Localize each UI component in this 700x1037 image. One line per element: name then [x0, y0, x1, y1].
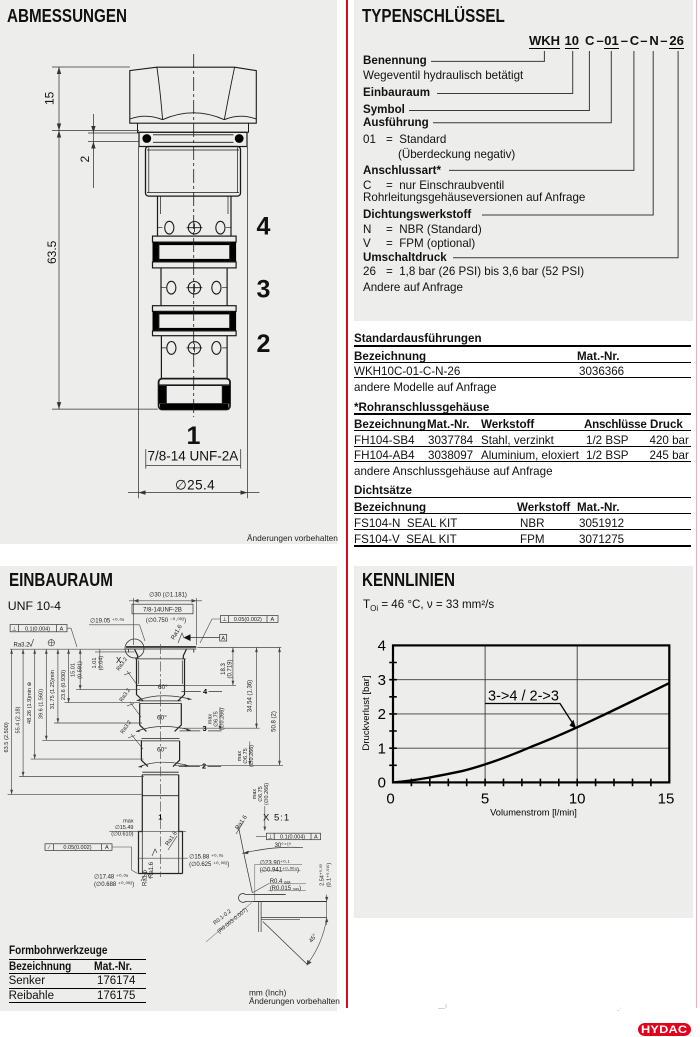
svg-text:Ra1.6: Ra1.6 — [149, 861, 155, 878]
svg-text:1: 1 — [187, 422, 201, 450]
svg-text:31.75 (1.25)min: 31.75 (1.25)min — [50, 670, 56, 709]
svg-text:A: A — [270, 617, 274, 623]
svg-text:(∅0.266): (∅0.266) — [263, 783, 270, 805]
svg-text:(∅0.266): (∅0.266) — [248, 745, 255, 767]
svg-text:3: 3 — [378, 672, 386, 689]
svg-text:50.8 (2): 50.8 (2) — [272, 711, 278, 732]
svg-text:63.5: 63.5 — [45, 240, 59, 264]
svg-text:15: 15 — [658, 791, 675, 808]
svg-text:Ra1.6: Ra1.6 — [165, 830, 179, 847]
svg-text:Ra1.6: Ra1.6 — [171, 624, 185, 641]
svg-text:∅15.88 ⁺⁰·⁰⁵: ∅15.88 ⁺⁰·⁰⁵ — [189, 854, 224, 861]
svg-text:(∅0.750 ⁻⁰·⁰⁰²): (∅0.750 ⁻⁰·⁰⁰²) — [146, 617, 186, 624]
svg-text:7/8-14 UNF-2A: 7/8-14 UNF-2A — [148, 449, 239, 464]
svg-text:3->4 / 2->3: 3->4 / 2->3 — [488, 689, 559, 705]
svg-text:(∅0.688 ⁺⁰·⁰⁰²): (∅0.688 ⁺⁰·⁰⁰²) — [94, 881, 134, 888]
svg-text:1: 1 — [378, 740, 386, 757]
svg-text:Druckverlust [bar]: Druckverlust [bar] — [361, 675, 372, 750]
svg-text:4: 4 — [257, 213, 271, 241]
svg-text:Volumenstrom [l/min]: Volumenstrom [l/min] — [490, 808, 577, 818]
svg-text:15: 15 — [43, 91, 57, 105]
svg-text:18.3: 18.3 — [221, 663, 227, 675]
svg-text:39.6 (1.560): 39.6 (1.560) — [39, 689, 45, 719]
svg-text:0: 0 — [386, 791, 394, 808]
svg-text:45°: 45° — [309, 933, 319, 944]
svg-text:∅15.49: ∅15.49 — [115, 824, 134, 831]
svg-text:X 5:1: X 5:1 — [263, 813, 290, 824]
svg-text:A: A — [221, 636, 225, 642]
svg-text:∅19.05 ⁺⁰·⁰⁵: ∅19.05 ⁺⁰·⁰⁵ — [90, 618, 125, 625]
svg-text:5: 5 — [481, 791, 489, 808]
svg-text:(∅0.941⁺⁰·⁰⁰⁴): (∅0.941⁺⁰·⁰⁰⁴) — [260, 866, 299, 873]
svg-text:Änderungen vorbehalten: Änderungen vorbehalten — [249, 996, 340, 1006]
svg-text:55.4 (2.18): 55.4 (2.18) — [16, 706, 22, 733]
svg-text:∅30 (∅1.181): ∅30 (∅1.181) — [149, 592, 187, 599]
svg-text:(0.04): (0.04) — [99, 656, 105, 671]
svg-text:60°: 60° — [157, 745, 167, 753]
svg-text:Ra3.2: Ra3.2 — [120, 720, 133, 735]
svg-text:⊥: ⊥ — [222, 616, 227, 623]
svg-text:Ra1.6: Ra1.6 — [235, 814, 249, 831]
svg-text:∅6.75: ∅6.75 — [257, 786, 264, 802]
svg-text:2.54⁺⁰·³⁰: 2.54⁺⁰·³⁰ — [319, 863, 326, 885]
svg-text:0: 0 — [378, 775, 386, 792]
svg-text:X: X — [116, 656, 122, 665]
svg-text:⊥: ⊥ — [12, 625, 17, 632]
svg-text:max: max — [123, 819, 134, 825]
svg-text:1: 1 — [158, 812, 162, 821]
svg-text:A: A — [105, 845, 109, 851]
svg-text:4: 4 — [203, 687, 208, 696]
svg-text:2: 2 — [257, 330, 271, 358]
svg-text:∅6.75: ∅6.75 — [242, 748, 249, 764]
svg-text:34.54 (1.36): 34.54 (1.36) — [248, 680, 254, 712]
svg-text:15.01: 15.01 — [71, 663, 77, 677]
svg-text:A: A — [314, 834, 318, 840]
svg-text:A: A — [60, 626, 64, 632]
svg-text:(0.591): (0.591) — [78, 661, 84, 679]
svg-text:60°: 60° — [158, 683, 168, 691]
svg-text:3: 3 — [257, 276, 271, 304]
svg-text:(R0.015 ₒₐₓ): (R0.015 ₒₐₓ) — [270, 886, 301, 892]
svg-text:(∅0.625 ⁺⁰·⁰⁰²): (∅0.625 ⁺⁰·⁰⁰²) — [189, 861, 229, 868]
svg-text:(0.719): (0.719) — [228, 659, 234, 678]
svg-text:∅23.90⁺⁰·¹: ∅23.90⁺⁰·¹ — [260, 860, 290, 867]
svg-text:Ra3.2: Ra3.2 — [14, 643, 31, 649]
svg-text:48.26 (1.9)min ⊕: 48.26 (1.9)min ⊕ — [27, 681, 33, 724]
svg-text:0.1(0.004): 0.1(0.004) — [25, 626, 50, 632]
svg-text:0.05(0.002): 0.05(0.002) — [63, 845, 91, 851]
svg-text:(0.1⁺⁰·⁰¹⁵): (0.1⁺⁰·⁰¹⁵) — [326, 863, 333, 888]
svg-text:2: 2 — [378, 706, 386, 723]
svg-text:1.01: 1.01 — [92, 658, 98, 669]
svg-text:2: 2 — [202, 762, 206, 771]
svg-text:60°: 60° — [157, 714, 167, 722]
svg-text:⊥: ⊥ — [268, 833, 273, 840]
svg-text:10: 10 — [569, 791, 586, 808]
svg-text:∅6.75: ∅6.75 — [213, 711, 220, 727]
svg-text:7/8-14UNF-2B: 7/8-14UNF-2B — [143, 608, 182, 614]
svg-text:0.05(0.002): 0.05(0.002) — [234, 617, 262, 623]
svg-text:Ra1.6: Ra1.6 — [143, 869, 149, 886]
svg-text:2: 2 — [78, 156, 92, 163]
svg-text:(∅0.266): (∅0.266) — [219, 708, 226, 730]
svg-text:∅25.4: ∅25.4 — [175, 478, 215, 493]
svg-text:4: 4 — [378, 638, 386, 655]
svg-text:23.6 (0.930): 23.6 (0.930) — [61, 670, 67, 700]
svg-text:63.5 (2.500): 63.5 (2.500) — [4, 722, 10, 752]
svg-text:∅17.48 ⁺⁰·⁰⁵: ∅17.48 ⁺⁰·⁰⁵ — [94, 873, 129, 880]
svg-text:0.1(0.004): 0.1(0.004) — [280, 834, 305, 840]
